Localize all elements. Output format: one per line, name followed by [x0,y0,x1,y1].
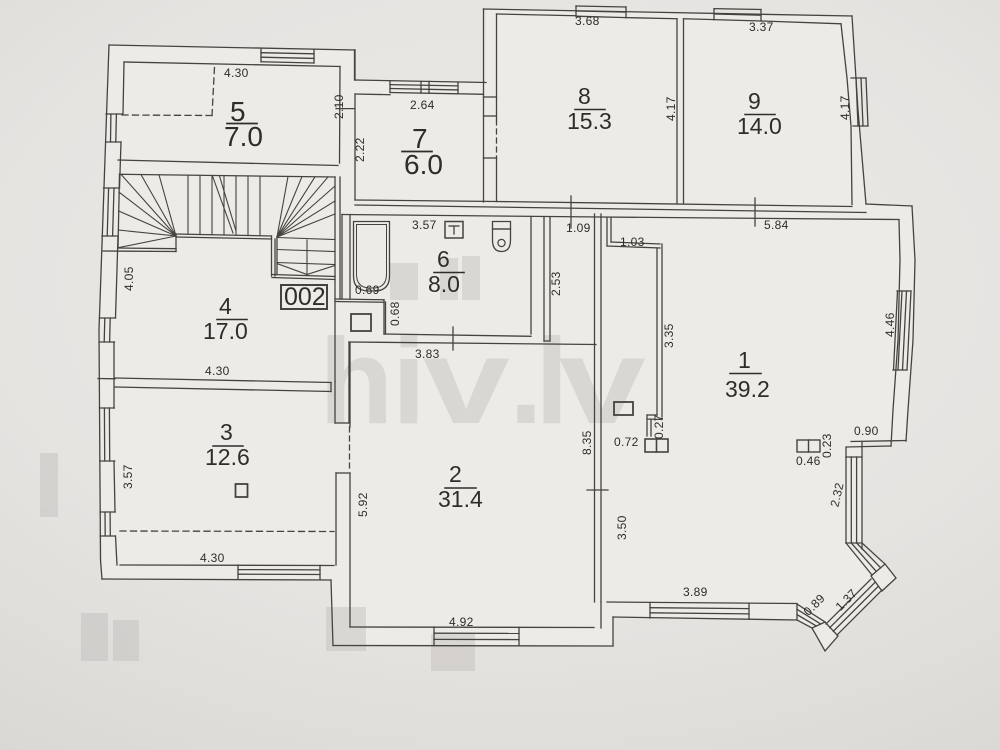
svg-text:0.68: 0.68 [388,301,402,326]
svg-text:3.50: 3.50 [615,515,629,540]
svg-text:0.90: 0.90 [854,424,879,438]
svg-text:002: 002 [284,283,326,311]
svg-text:6: 6 [437,246,450,272]
svg-text:4.05: 4.05 [122,266,136,291]
svg-text:2.64: 2.64 [410,98,435,112]
svg-text:3.89: 3.89 [683,585,708,599]
svg-text:2.53: 2.53 [549,271,563,296]
svg-text:8.35: 8.35 [580,430,594,455]
svg-text:14.0: 14.0 [737,113,782,139]
svg-text:12.6: 12.6 [205,444,250,470]
svg-text:1: 1 [738,347,751,373]
svg-text:v: v [559,312,646,449]
svg-text:0.23: 0.23 [820,433,834,458]
svg-text:7.0: 7.0 [224,121,263,152]
svg-text:1.09: 1.09 [566,221,591,235]
svg-text:2.22: 2.22 [353,137,367,162]
svg-text:3.83: 3.83 [415,347,440,361]
svg-text:3.35: 3.35 [662,323,676,348]
svg-text:15.3: 15.3 [567,108,612,134]
svg-text:8.0: 8.0 [428,271,460,297]
svg-text:4.17: 4.17 [838,95,852,120]
svg-text:3.68: 3.68 [575,14,600,28]
svg-text:9: 9 [748,88,761,114]
svg-text:2: 2 [449,461,462,487]
svg-text:3.37: 3.37 [749,20,774,34]
svg-text:4.17: 4.17 [664,96,678,121]
svg-text:8: 8 [578,83,591,109]
svg-text:4: 4 [219,293,232,319]
svg-text:4.30: 4.30 [224,66,249,80]
svg-text:5.84: 5.84 [764,218,789,232]
svg-text:3.57: 3.57 [412,218,437,232]
svg-text:0.69: 0.69 [355,283,380,297]
svg-text:17.0: 17.0 [203,318,248,344]
svg-text:31.4: 31.4 [438,486,483,512]
svg-text:3: 3 [220,419,233,445]
svg-text:4.30: 4.30 [205,364,230,378]
svg-text:2.10: 2.10 [332,94,346,119]
svg-text:1.03: 1.03 [620,235,645,249]
svg-text:4.92: 4.92 [449,615,474,629]
svg-text:39.2: 39.2 [725,376,770,402]
svg-text:5.92: 5.92 [356,492,370,517]
svg-text:0.72: 0.72 [614,435,639,449]
svg-text:0.27: 0.27 [652,414,666,439]
svg-text:0.46: 0.46 [796,454,821,468]
svg-text:4.30: 4.30 [200,551,225,565]
svg-text:4.46: 4.46 [883,312,897,337]
svg-text:v: v [423,312,510,449]
svg-text:6.0: 6.0 [404,149,443,180]
svg-text:3.57: 3.57 [121,464,135,489]
